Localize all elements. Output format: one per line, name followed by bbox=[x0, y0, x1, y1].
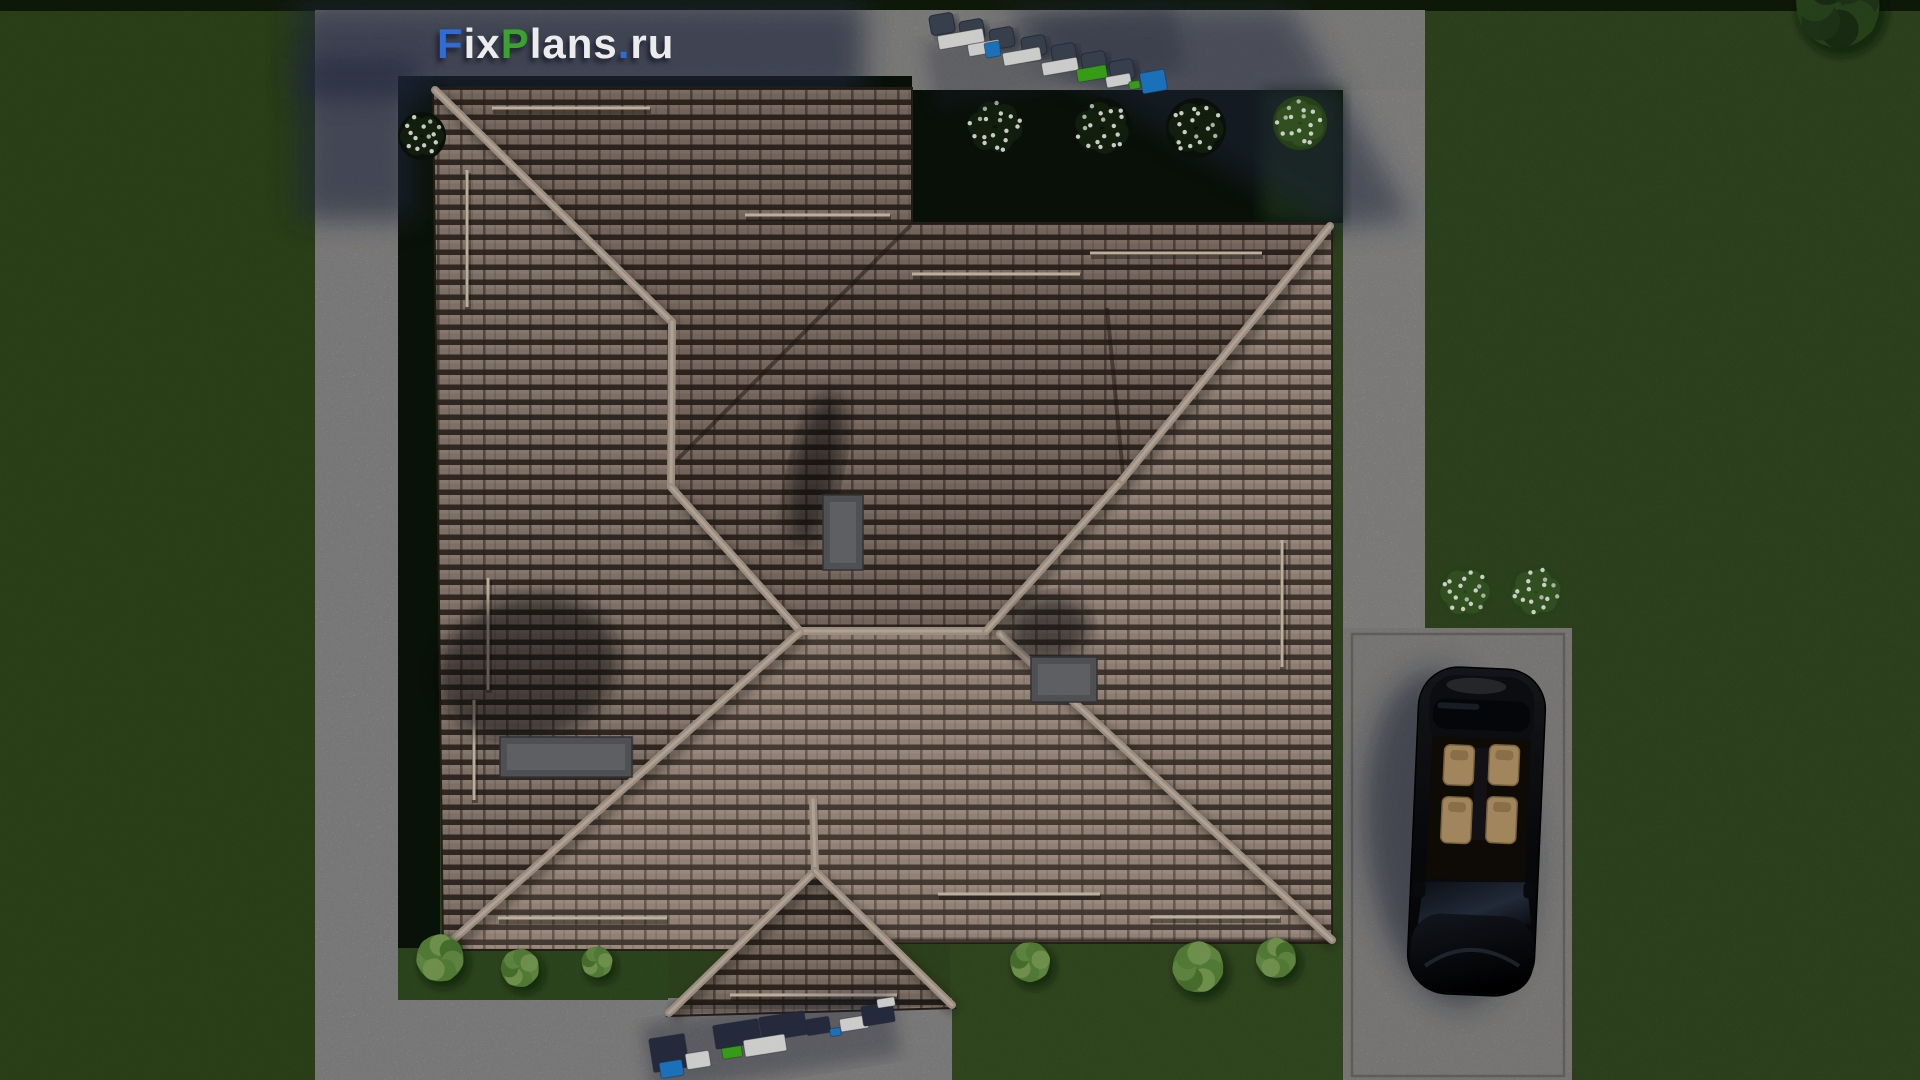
logo-segment: ix bbox=[464, 20, 501, 68]
scene-canvas bbox=[0, 0, 1920, 1080]
logo-segment: . bbox=[618, 20, 631, 68]
site-plan-render: FixPlans.ru bbox=[0, 0, 1920, 1080]
logo-segment: F bbox=[437, 20, 464, 68]
logo-segment: ru bbox=[630, 20, 674, 68]
fixplans-logo: FixPlans.ru bbox=[437, 20, 674, 68]
photo-grain bbox=[0, 0, 1920, 1080]
logo-segment: P bbox=[501, 20, 530, 68]
logo-segment: lans bbox=[530, 20, 618, 68]
